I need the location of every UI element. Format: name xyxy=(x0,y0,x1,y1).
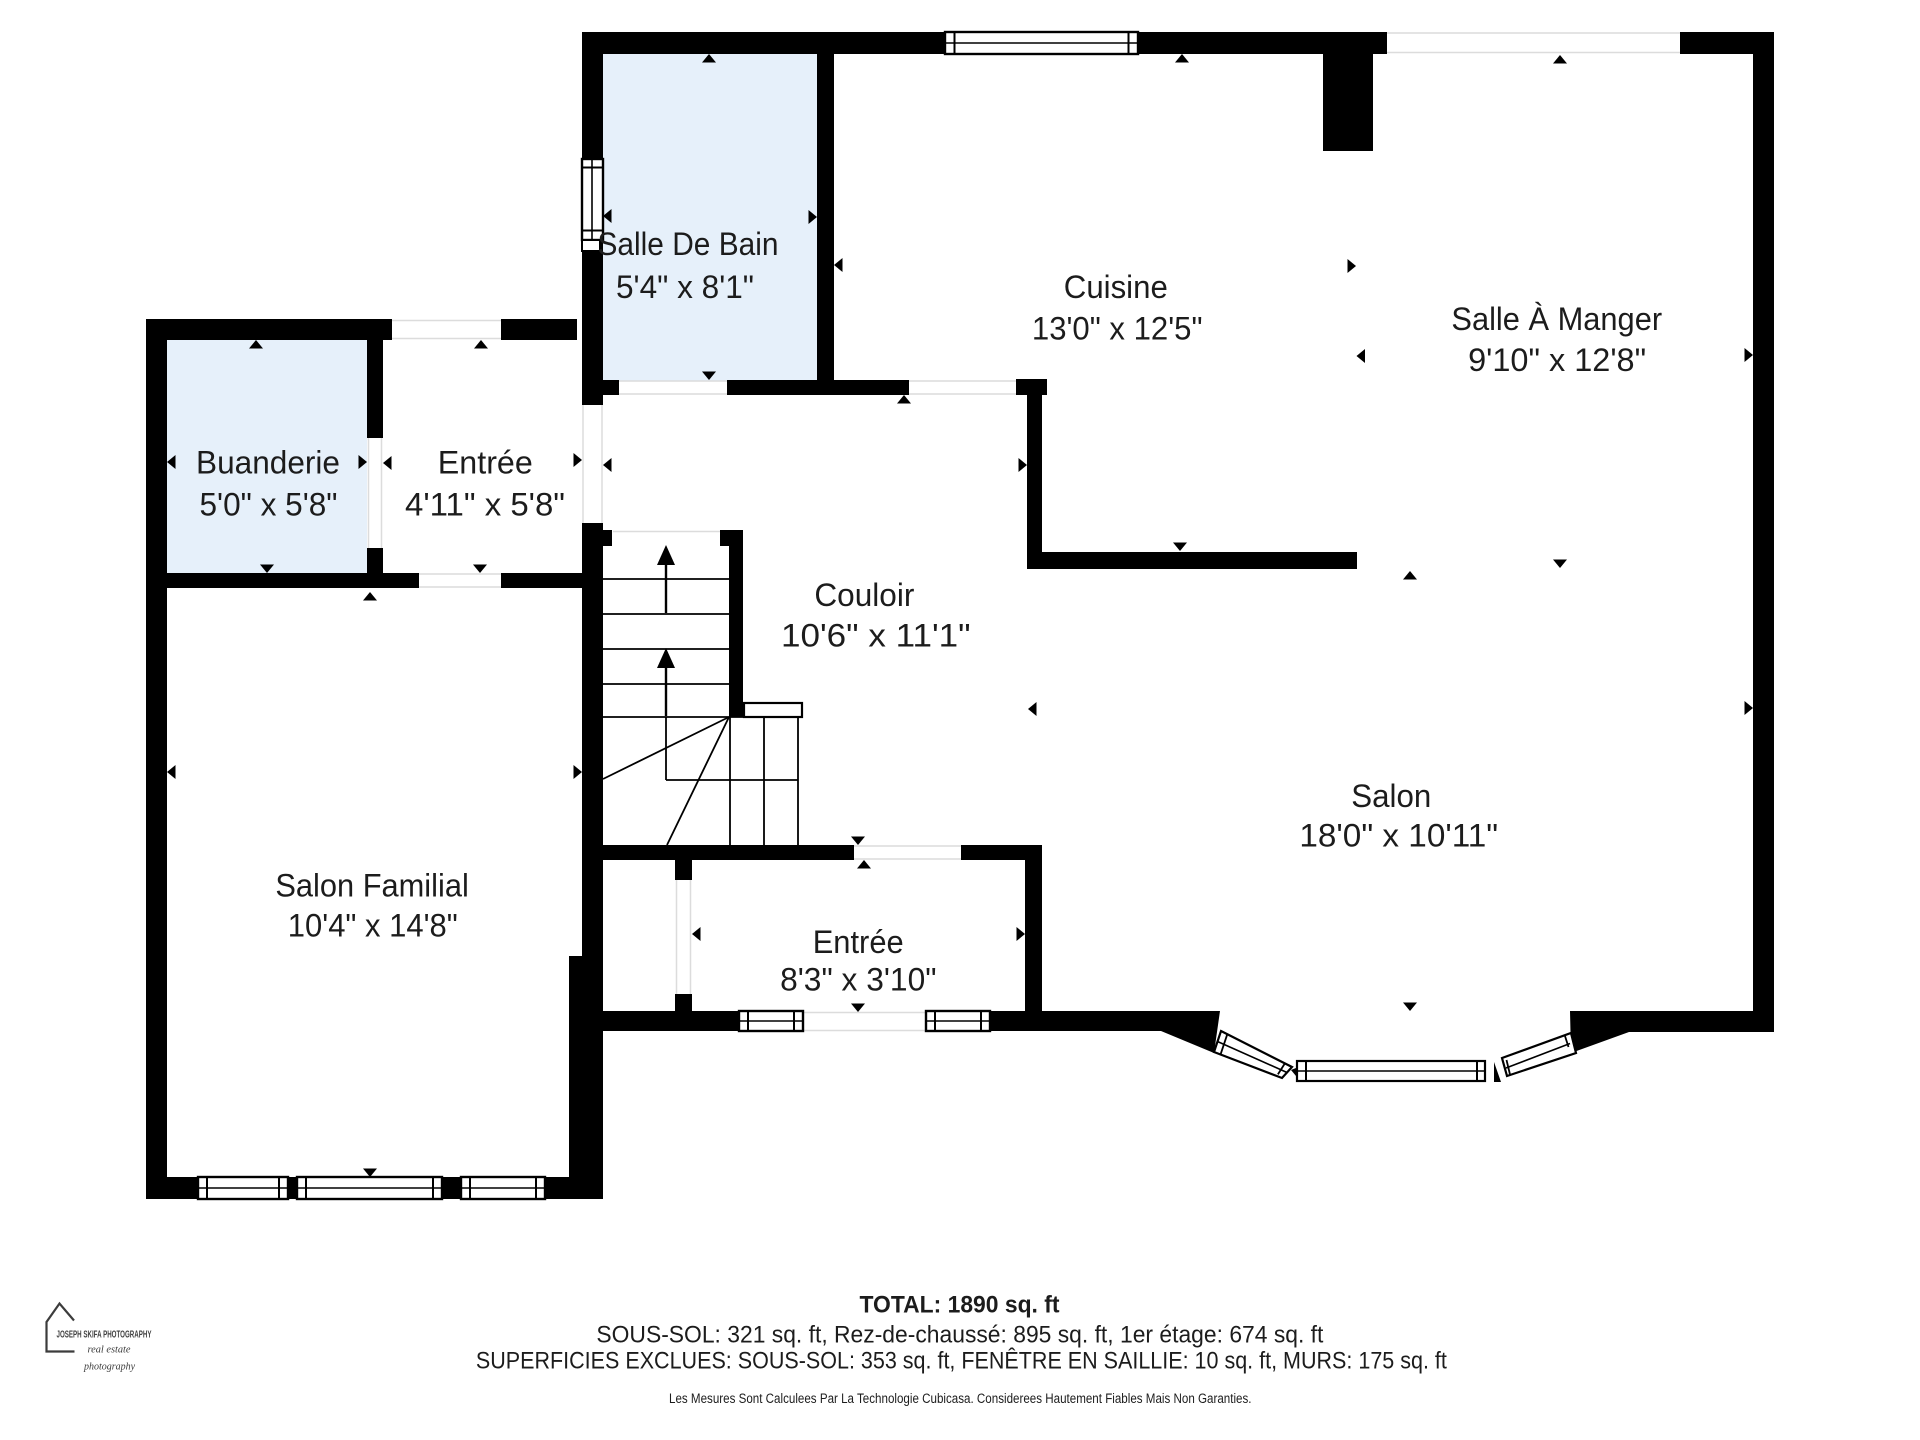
svg-text:Salle À Manger: Salle À Manger xyxy=(1451,301,1662,337)
svg-text:8'3" x 3'10": 8'3" x 3'10" xyxy=(780,961,936,997)
svg-text:photography: photography xyxy=(83,1362,136,1373)
svg-text:10'6" x 11'1": 10'6" x 11'1" xyxy=(781,618,971,654)
svg-text:Salle De Bain: Salle De Bain xyxy=(598,226,779,262)
svg-text:real estate: real estate xyxy=(88,1345,132,1356)
svg-text:10'4" x 14'8": 10'4" x 14'8" xyxy=(288,907,458,943)
svg-text:Les Mesures Sont Calculees Par: Les Mesures Sont Calculees Par La Techno… xyxy=(669,1391,1252,1406)
svg-text:TOTAL: 1890 sq. ft: TOTAL: 1890 sq. ft xyxy=(860,1292,1060,1319)
svg-text:13'0" x 12'5": 13'0" x 12'5" xyxy=(1032,311,1203,347)
svg-text:Cuisine: Cuisine xyxy=(1064,269,1168,305)
svg-text:SUPERFICIES EXCLUES: SOUS-SOL:: SUPERFICIES EXCLUES: SOUS-SOL: 353 sq. f… xyxy=(476,1348,1447,1375)
svg-text:Salon: Salon xyxy=(1351,778,1431,814)
svg-text:4'11" x 5'8": 4'11" x 5'8" xyxy=(405,487,565,523)
svg-text:JOSEPH SKIFA PHOTOGRAPHY: JOSEPH SKIFA PHOTOGRAPHY xyxy=(57,1330,152,1341)
svg-text:Couloir: Couloir xyxy=(814,577,914,613)
svg-text:5'4" x 8'1": 5'4" x 8'1" xyxy=(616,269,754,305)
svg-text:18'0" x 10'11": 18'0" x 10'11" xyxy=(1299,817,1498,853)
svg-text:SOUS-SOL: 321 sq. ft, Rez-de-c: SOUS-SOL: 321 sq. ft, Rez-de-chaussé: 89… xyxy=(596,1322,1323,1349)
svg-text:9'10" x 12'8": 9'10" x 12'8" xyxy=(1468,342,1646,378)
svg-text:Entrée: Entrée xyxy=(813,924,904,960)
svg-text:Buanderie: Buanderie xyxy=(196,445,340,481)
svg-text:5'0" x 5'8": 5'0" x 5'8" xyxy=(200,487,338,523)
svg-text:Salon Familial: Salon Familial xyxy=(275,868,468,904)
svg-text:Entrée: Entrée xyxy=(438,445,533,481)
